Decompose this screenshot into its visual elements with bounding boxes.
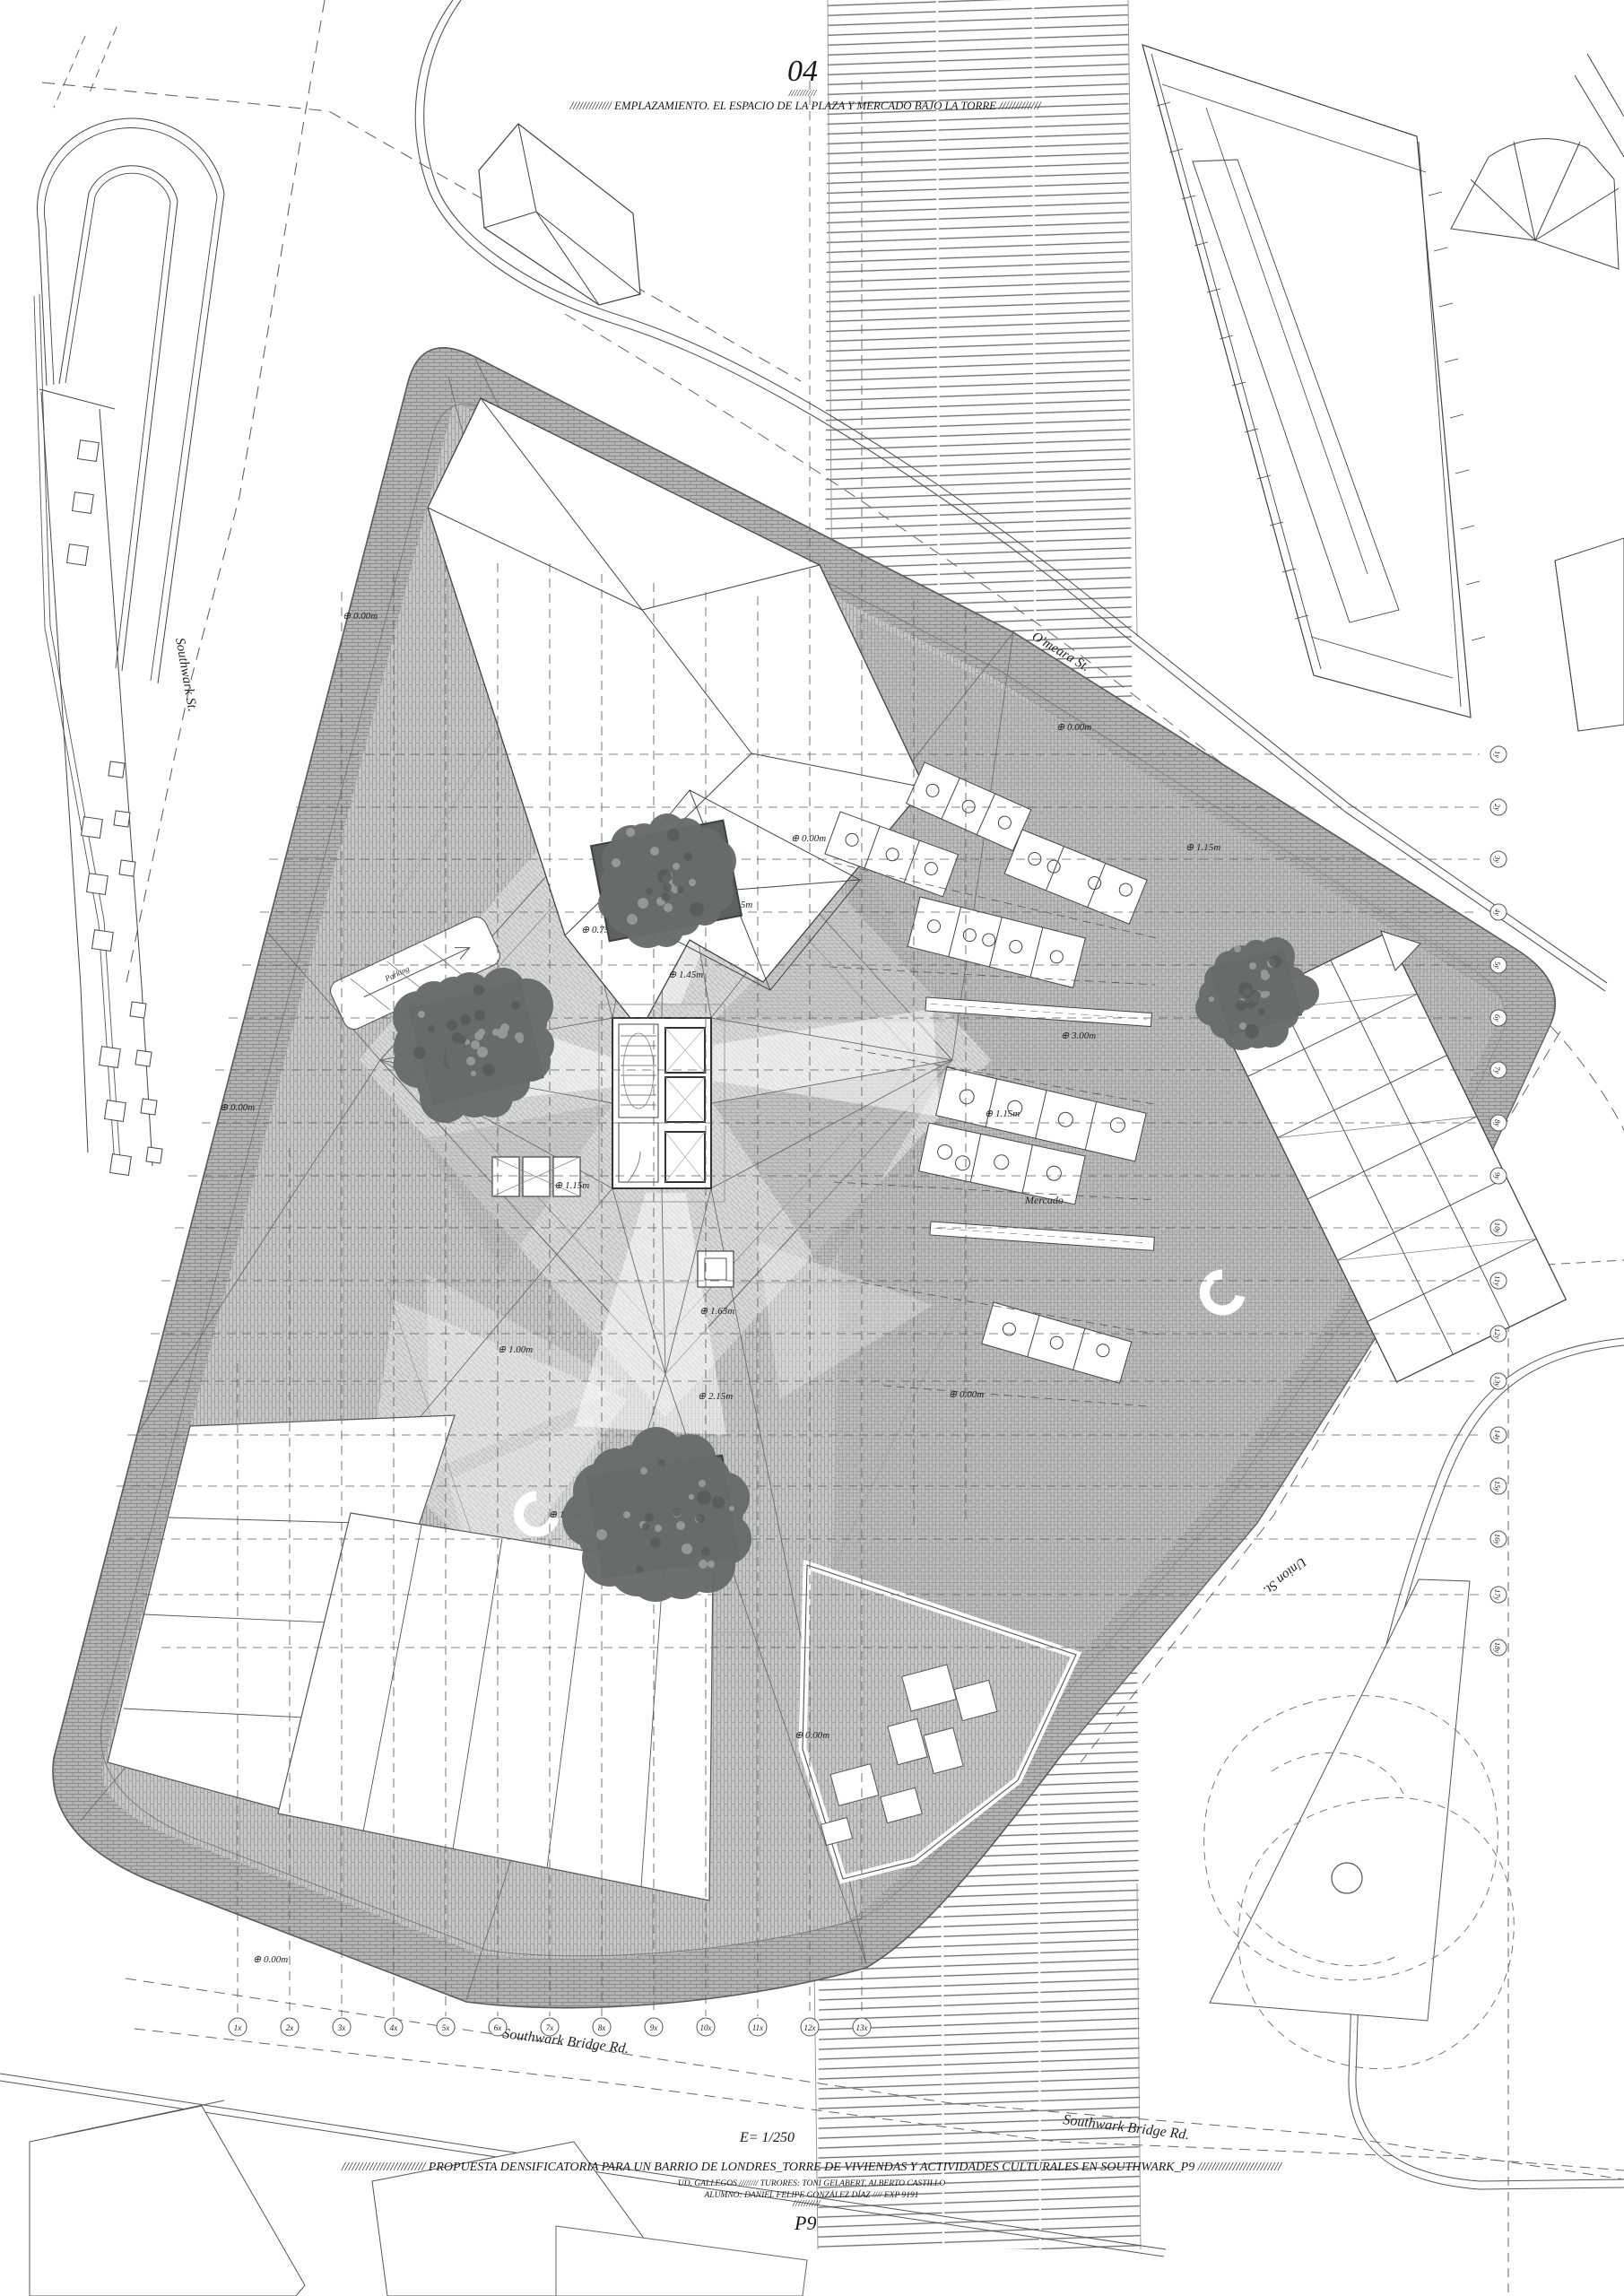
svg-text:18y: 18y [1493,1642,1502,1654]
svg-text:6x: 6x [494,2023,502,2032]
svg-text:17y: 17y [1493,1589,1502,1601]
svg-text:Mercado: Mercado [1024,1194,1064,1206]
svg-text:15y: 15y [1493,1481,1502,1492]
svg-text:12y: 12y [1493,1328,1502,1340]
svg-text:8x: 8x [598,2023,606,2032]
svg-text:⊕ 0.00m: ⊕ 0.00m [791,833,826,844]
svg-text:⊕ 2.15m: ⊕ 2.15m [698,1391,733,1402]
svg-text:⊕ 1.15m: ⊕ 1.15m [985,1109,1020,1119]
svg-text:///////////// EMPLAZAMIENTO.: ///////////// EMPLAZAMIENTO. EL ESPACIO … [569,100,1042,112]
svg-text:9x: 9x [650,2023,658,2032]
svg-text:13x: 13x [856,2023,868,2032]
svg-text:UD. GALLEGOS //////// TURORES:: UD. GALLEGOS //////// TURORES: TONI GELA… [678,2179,945,2188]
svg-text:13y: 13y [1493,1376,1502,1387]
svg-text:1y: 1y [1493,751,1502,758]
svg-text:5y: 5y [1493,961,1502,969]
svg-text:⊕ 0.00m: ⊕ 0.00m [220,1102,255,1113]
svg-text:⊕ 1.00m: ⊕ 1.00m [498,1344,533,1355]
svg-text:10x: 10x [700,2023,712,2032]
svg-text:14y: 14y [1493,1430,1502,1441]
svg-text:7x: 7x [546,2023,554,2032]
svg-text:2y: 2y [1493,804,1502,811]
svg-text:9y: 9y [1493,1172,1502,1179]
svg-text:3x: 3x [337,2023,346,2032]
svg-text:11y: 11y [1493,1275,1502,1286]
svg-text:E= 1/250: E= 1/250 [739,2130,795,2145]
svg-text:5x: 5x [442,2023,450,2032]
svg-text:⊕ 1.63m: ⊕ 1.63m [699,1306,734,1317]
svg-text://////////: ////////// [788,88,818,99]
svg-text:8y: 8y [1493,1119,1502,1126]
svg-text:1x: 1x [234,2023,242,2032]
svg-text:⊕ 0.00m: ⊕ 0.00m [949,1389,984,1400]
svg-text:P9: P9 [794,2212,816,2234]
svg-text:16y: 16y [1493,1534,1502,1545]
svg-text://////////: ////////// [792,2198,821,2209]
svg-text:⊕ 0.00m: ⊕ 0.00m [343,611,378,622]
svg-text:⊕ 0.00m: ⊕ 0.00m [1056,722,1091,733]
svg-text:⊕ 0.00m: ⊕ 0.00m [795,1730,829,1741]
svg-text:11x: 11x [752,2023,763,2032]
svg-text:10y: 10y [1493,1222,1502,1234]
svg-text:⊕ 1.15m: ⊕ 1.15m [554,1180,589,1191]
svg-text:2x: 2x [286,2023,294,2032]
svg-text:6y: 6y [1493,1014,1502,1022]
svg-text:04: 04 [787,55,818,88]
svg-text://////////////////////// PROPU: //////////////////////// PROPUESTA DENSI… [341,2161,1282,2174]
svg-text:4x: 4x [390,2023,398,2032]
svg-text:4y: 4y [1493,909,1502,916]
svg-text:12x: 12x [804,2023,816,2032]
svg-text:⊕ 0.00m: ⊕ 0.00m [253,1954,288,1965]
svg-text:⊕ 1.45m: ⊕ 1.45m [668,970,703,980]
svg-text:⊕ 3.00m: ⊕ 3.00m [1061,1031,1096,1041]
svg-text:3y: 3y [1493,855,1502,863]
svg-text:⊕ 1.15m: ⊕ 1.15m [1185,842,1220,853]
svg-text:7y: 7y [1493,1066,1502,1074]
